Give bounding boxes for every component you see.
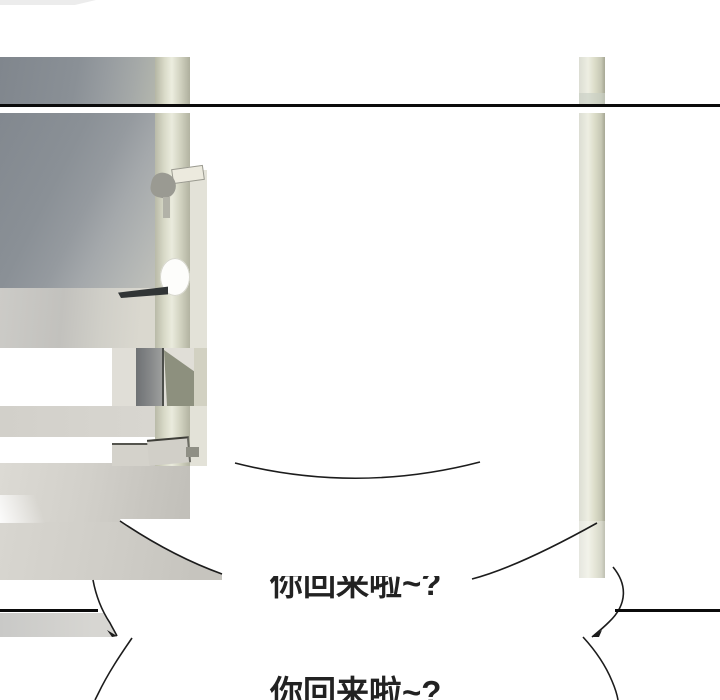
panel-divider-line-top [0,104,720,107]
speech-bubble-text-2: 你回来啦~? [270,676,441,700]
unloaded-tile-cover [223,536,469,576]
panel-divider-line-bottom-left [0,609,98,612]
panel-divider-line-bottom-right [615,609,720,612]
comic-page-canvas[interactable]: 你回来啦~? 你回来啦~? [0,0,720,700]
